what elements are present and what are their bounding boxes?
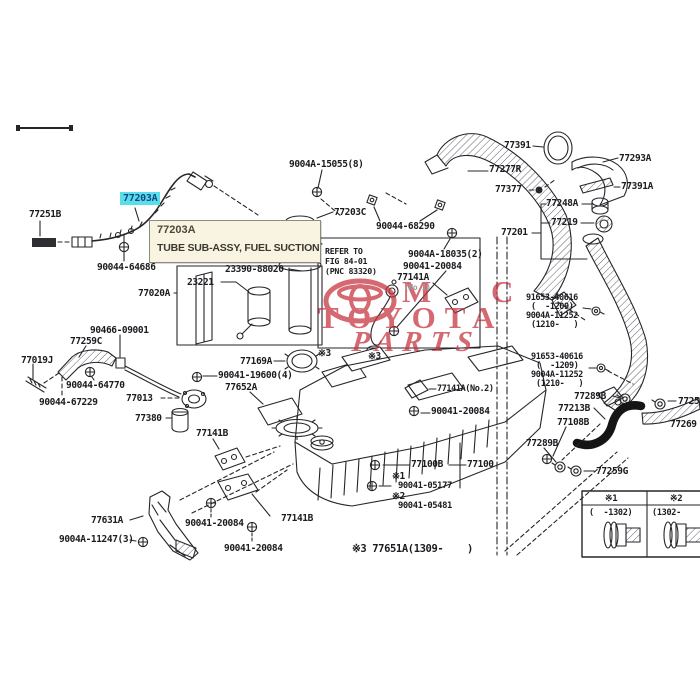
part-label: 77289B	[526, 439, 558, 449]
ref-table-range-1: ( -1302)	[589, 508, 632, 518]
part-label: 90044-68290	[376, 222, 435, 232]
refer-note-line: (PNC 83320)	[325, 266, 377, 276]
part-label: 77269	[670, 420, 697, 430]
part-label: 90044-67229	[39, 398, 98, 408]
ref-table-header-1: ※1	[605, 494, 617, 504]
part-label: 77277R	[489, 165, 521, 175]
part-label: (1210- )	[531, 321, 578, 330]
part-label: 90041-20084	[403, 262, 462, 272]
part-label: 9004A-11247(3)	[59, 535, 133, 545]
part-label: 77259G	[596, 467, 628, 477]
footnote-text: 77651A(1309- )	[366, 543, 473, 555]
parts-diagram-page: { "diagram": { "highlight_label": { "tex…	[0, 0, 700, 700]
refer-note-line: FIG 84-01	[325, 256, 377, 266]
part-label: 77141B	[196, 429, 228, 439]
part-label: 77391A	[621, 182, 653, 192]
part-label: 77652A	[225, 383, 257, 393]
part-label: 90041-19600(4)	[218, 371, 292, 381]
part-label: 77380	[135, 414, 162, 424]
part-label: 77100	[467, 460, 494, 470]
part-label: 9004A-18035(2)	[408, 250, 482, 260]
part-label: 7725	[678, 397, 699, 407]
part-label: 77631A	[91, 516, 123, 526]
part-label: 77289B	[574, 392, 606, 402]
part-label: 77169A	[240, 357, 272, 367]
part-label: ※3	[318, 349, 331, 359]
part-label: 77293A	[619, 154, 651, 164]
refer-note: REFER TO FIG 84-01 (PNC 83320)	[325, 246, 377, 276]
part-label: 90041-05177	[398, 482, 452, 491]
part-label: 90041-20084	[224, 544, 283, 554]
part-tooltip: 77203A TUBE SUB-ASSY, FUEL SUCTION	[149, 220, 321, 263]
footnote-marker: ※3	[352, 543, 366, 555]
part-label: 23221	[187, 278, 214, 288]
part-label: 77019J	[21, 356, 53, 366]
part-label: 77108B	[557, 418, 589, 428]
part-label: 90044-64686	[97, 263, 156, 273]
part-label: (1210- )	[536, 380, 583, 389]
part-label: 77377	[495, 185, 522, 195]
footnote: ※3 77651A(1309- )	[352, 543, 473, 555]
part-label: 90041-20084	[185, 519, 244, 529]
part-label: 77219	[551, 218, 578, 228]
part-label: 77100B	[411, 460, 443, 470]
part-label: 77141A	[397, 273, 429, 283]
part-label: 77020A	[138, 289, 170, 299]
part-label: 77141B	[281, 514, 313, 524]
part-label: 77213B	[558, 404, 590, 414]
part-label: 90041-05481	[398, 502, 452, 511]
part-label: 77201	[501, 228, 528, 238]
ref-table-range-2: (1302-	[652, 508, 681, 518]
part-label: 90044-64770	[66, 381, 125, 391]
part-label: (No.1)	[404, 284, 431, 292]
refer-note-line: REFER TO	[325, 246, 377, 256]
highlighted-part-label[interactable]: 77203A	[120, 192, 160, 205]
part-label: 77248A	[546, 199, 578, 209]
tooltip-part-description[interactable]: TUBE SUB-ASSY, FUEL SUCTION	[157, 242, 320, 254]
part-label: 77013	[126, 394, 153, 404]
ref-table-header-2: ※2	[670, 494, 682, 504]
part-label: ※3	[368, 352, 381, 362]
part-label: 77141A(No.2)	[437, 385, 494, 394]
part-label: 9004A-15055(8)	[289, 160, 363, 170]
part-label: 90466-09001	[90, 326, 149, 336]
part-label: 77203C	[334, 208, 366, 218]
part-label: 77259C	[70, 337, 102, 347]
tooltip-part-number: 77203A	[157, 224, 320, 236]
part-label: 77251B	[29, 210, 61, 220]
part-label: 90041-20084	[431, 407, 490, 417]
part-label: 77391	[504, 141, 531, 151]
part-label: 23390-88020	[225, 265, 284, 275]
